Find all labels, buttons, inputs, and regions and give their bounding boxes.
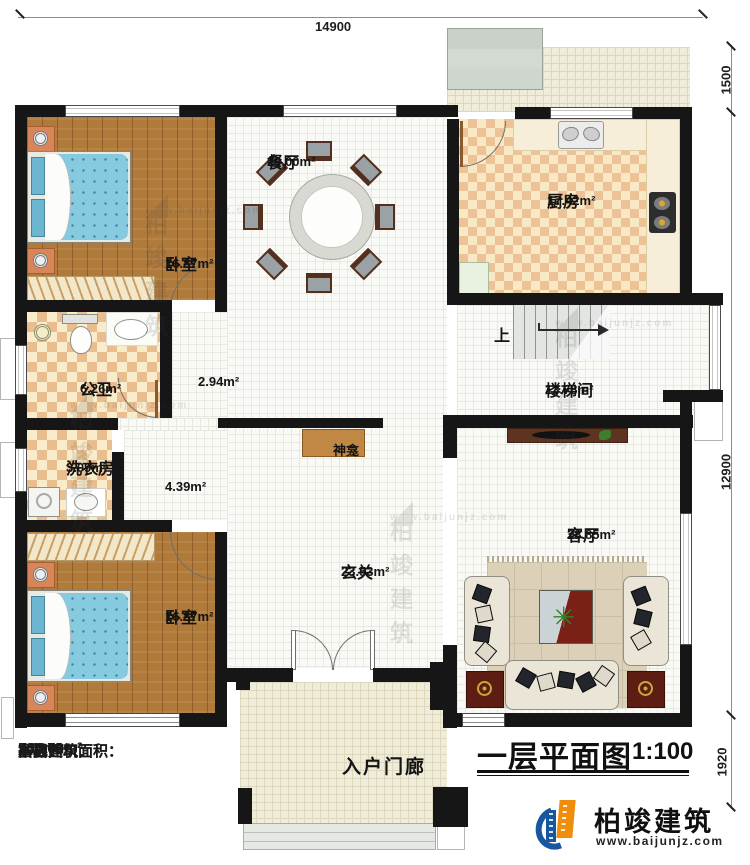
- bed-top-pillow-1: [31, 157, 45, 195]
- living-rug-fringe: [487, 556, 647, 562]
- wall-foyer-south-b: [373, 668, 432, 682]
- wall-foyer-living-top: [443, 418, 457, 458]
- dining-floor: [227, 117, 447, 418]
- toilet-tank: [62, 314, 98, 324]
- stair-up-text: 上: [494, 328, 510, 346]
- bed-bottom-pillow-2: [31, 638, 45, 676]
- window-bedroom-bottom: [65, 713, 180, 727]
- stairs-arrow-head: [598, 324, 609, 336]
- logo-swoosh: [529, 800, 584, 857]
- wall-left: [15, 105, 27, 728]
- roof-overhang-corner: [1, 697, 14, 739]
- porch-pillar-top-left: [236, 668, 250, 690]
- dining-chair: [375, 204, 395, 230]
- wall-kitchen-top-1: [515, 107, 550, 119]
- hall-lower-floor2: [124, 430, 227, 520]
- room-area: 17.42m²: [547, 194, 595, 209]
- dining-table-top: [301, 186, 363, 248]
- coffee-table-plant: ✳: [552, 601, 575, 634]
- dim-right-lower: 1920: [715, 748, 730, 777]
- wall-top-3: [397, 105, 458, 117]
- dimension-line-top: [18, 17, 703, 18]
- room-area: 2.94m²: [198, 375, 239, 390]
- window-bathroom: [15, 345, 27, 395]
- wall-bedroom-top-right: [215, 117, 227, 312]
- room-area: 13.78m²: [545, 383, 593, 398]
- wall-kitchen-west: [447, 119, 459, 295]
- porch-steps: [243, 823, 436, 850]
- sofa-pillow: [473, 625, 491, 643]
- shower-drain: [34, 324, 51, 341]
- room-name: 神龛: [333, 444, 359, 459]
- dining-chair: [243, 204, 263, 230]
- window-kitchen: [550, 107, 633, 119]
- wall-bedroom-bottom-top: [15, 520, 172, 532]
- room-area: 23.53m²: [341, 565, 389, 580]
- stove-burner-2: [654, 216, 670, 229]
- wall-bedroom-top-bottom: [15, 300, 172, 312]
- door-leaf-foyer-left: [291, 630, 296, 670]
- door-leaf-bathroom: [155, 380, 158, 418]
- room-area: 29.00m²: [267, 155, 315, 170]
- bed-top-pillow-2: [31, 199, 45, 237]
- fridge: [459, 262, 489, 294]
- room-area: 28.85m²: [567, 528, 615, 543]
- room-area: 3.09m²: [66, 461, 107, 476]
- dimension-line-right: [731, 47, 732, 809]
- wall-stair-south: [443, 415, 693, 428]
- window-dining: [283, 105, 397, 117]
- wall-foyer-corner: [430, 662, 457, 710]
- bed-bottom-pillow-1: [31, 596, 45, 634]
- plan-scale: 1:100: [632, 738, 693, 766]
- wall-bay-south: [663, 390, 723, 402]
- bay-floor: [692, 305, 709, 390]
- wall-bedroom-bottom-right: [215, 532, 227, 713]
- laundry-sink-basin: [74, 493, 98, 511]
- window-sill-bath: [0, 338, 16, 400]
- end-table-left-medallion: [477, 681, 492, 696]
- nightstand-lamp: [33, 567, 48, 582]
- stairs-arrow-line: [538, 329, 600, 331]
- wardrobe-bottom: [27, 533, 155, 561]
- porch-pillar-bottom-right: [433, 787, 468, 827]
- toilet-bowl: [70, 326, 92, 354]
- window-living-east: [680, 513, 692, 645]
- nightstand-lamp: [33, 131, 48, 146]
- nightstand-lamp: [33, 253, 48, 268]
- wall-shrine: [218, 418, 383, 428]
- wall-bathroom-right: [160, 312, 172, 418]
- wall-kitchen-top-2: [633, 107, 692, 119]
- wall-kitchen-south: [447, 293, 723, 305]
- room-area: 16.87m²: [165, 257, 213, 272]
- porch-pillar-bottom-left: [238, 788, 252, 824]
- washer-drum: [36, 493, 52, 509]
- terrace-steps: [447, 28, 543, 90]
- window-bedroom-top: [65, 105, 180, 117]
- wall-top-2: [180, 105, 283, 117]
- tv-plant: [599, 430, 611, 440]
- wall-living-east-2: [680, 645, 692, 713]
- window-sill-living: [694, 399, 723, 441]
- tv: [532, 431, 590, 439]
- wall-kitchen-east: [680, 119, 692, 293]
- porch-floor: [240, 682, 447, 823]
- stove-burner-1: [654, 197, 670, 210]
- door-leaf-foyer-right: [370, 630, 375, 670]
- logo-building-blue: [546, 810, 556, 842]
- hall-lower-floor: [112, 418, 227, 430]
- door-leaf-kitchen: [460, 121, 463, 167]
- stairs-arrow-tail: [538, 323, 540, 331]
- window-sill-laundry: [0, 442, 16, 498]
- hall-upper-floor: [172, 312, 227, 418]
- brand-logo-icon: [534, 796, 586, 854]
- window-living-south: [462, 713, 505, 727]
- end-table-right-medallion: [638, 681, 653, 696]
- window-stair-bay: [709, 305, 721, 390]
- floor-plan-canvas: ✳: [0, 0, 750, 865]
- dim-right-middle: 12900: [719, 454, 734, 490]
- nightstand-lamp: [33, 690, 48, 705]
- dim-right-upper: 1500: [719, 66, 734, 95]
- brand-url: www.baijunjz.com: [596, 834, 724, 848]
- title-underline: [477, 770, 689, 776]
- sofa-pillow: [475, 605, 494, 624]
- sofa-pillow: [557, 671, 576, 690]
- porch-side-step: [437, 823, 465, 850]
- room-name: 入户门廊: [342, 757, 426, 778]
- logo-building-orange: [556, 800, 575, 838]
- wall-living-east-1: [680, 402, 692, 513]
- room-area: 4.39m²: [165, 480, 206, 495]
- stat-value: 3.6m: [18, 740, 52, 757]
- wall-bathroom-bottom: [15, 418, 118, 430]
- window-laundry: [15, 448, 27, 492]
- room-area: 16.87m²: [165, 610, 213, 625]
- dining-chair: [306, 273, 332, 293]
- dim-top-value: 14900: [315, 19, 351, 34]
- room-area: 6.26m²: [80, 382, 121, 397]
- bath-sink-basin: [114, 319, 148, 340]
